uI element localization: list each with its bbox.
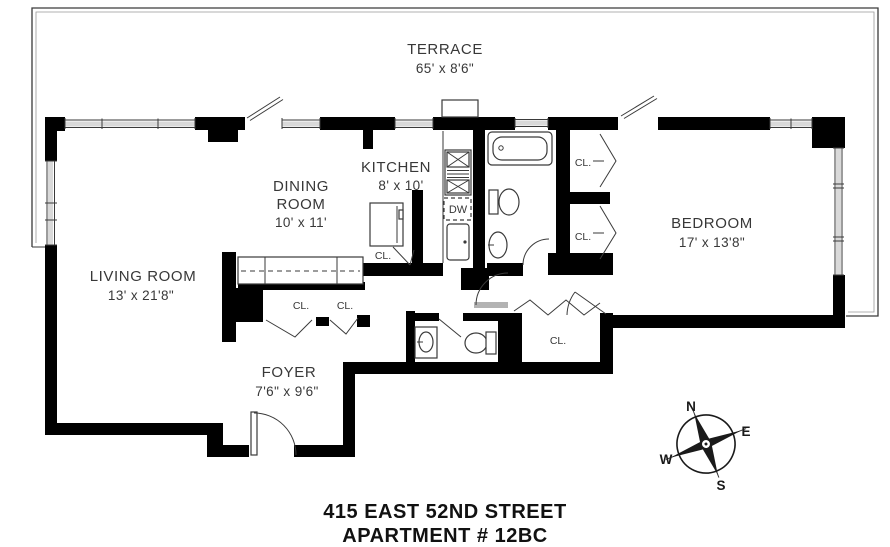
terrace-door-bedroom [621, 96, 657, 119]
built-in-shelf [238, 257, 363, 284]
dishwasher-label: DW [449, 204, 468, 216]
compass-south-label: S [716, 478, 725, 493]
dining-room-label-1: DINING [273, 178, 329, 195]
living-room-label: LIVING ROOM [90, 268, 197, 285]
floor-plan-page: TERRACE 65' x 8'6" LIVING ROOM 13' x 21'… [0, 0, 890, 547]
bedroom-closet-lower-bifold [593, 206, 616, 259]
bathroom-fixtures [488, 132, 552, 258]
address-block: 415 EAST 52ND STREET APARTMENT # 12BC [323, 501, 566, 547]
foyer-closet-right-label: CL. [337, 300, 353, 312]
compass-west-label: W [660, 452, 673, 467]
living-room-window-left [45, 161, 57, 245]
address-line1: 415 EAST 52ND STREET [323, 501, 566, 523]
address-line2: APARTMENT # 12BC [342, 525, 547, 547]
compass-east-label: E [741, 424, 750, 439]
foyer-closet-right-bifold [330, 318, 358, 334]
refrigerator-nook [370, 203, 403, 246]
bedroom-closet-lower-label: CL. [575, 231, 591, 243]
foyer-label: FOYER [262, 364, 317, 381]
bedroom-window-top [770, 118, 812, 129]
bathtub [488, 132, 552, 165]
bathroom-window [515, 118, 548, 128]
compass-rose: N E W S [653, 395, 759, 493]
windows [45, 118, 844, 275]
toilet-main [489, 189, 519, 215]
foyer-dims: 7'6" x 9'6" [255, 384, 318, 399]
bathroom-door [523, 239, 549, 265]
dining-room-window [395, 118, 433, 129]
kitchen-dims: 8' x 10' [378, 178, 423, 193]
hall-closet-label: CL. [550, 335, 566, 347]
living-room-window-top [65, 118, 195, 129]
floor-plan: TERRACE 65' x 8'6" LIVING ROOM 13' x 21'… [0, 0, 890, 547]
bedroom-label: BEDROOM [671, 215, 753, 232]
entry-door [251, 412, 296, 455]
powder-room-door [439, 319, 461, 337]
bedroom-closet-upper-bifold [593, 134, 616, 187]
closet-labels: CL. CL. CL. CL. CL. CL. DW [293, 157, 591, 347]
dining-room-dims: 10' x 11' [275, 215, 327, 230]
bedroom-closet-upper-label: CL. [575, 157, 591, 169]
terrace-door-dining [247, 97, 283, 121]
dining-closet-door [393, 247, 414, 265]
bedroom-window-east [833, 148, 844, 275]
sink-main [488, 232, 507, 258]
hall-closet-bifold [514, 300, 600, 315]
powder-room-fixtures [415, 327, 496, 358]
dining-closet-label: CL. [375, 250, 391, 262]
wall-shaft [442, 100, 478, 117]
toilet-powder [465, 332, 496, 354]
hall-door-leaf [474, 302, 508, 308]
dining-room-label-2: ROOM [276, 196, 325, 213]
refrigerator-kitchen [447, 224, 469, 260]
foyer-closet-left-label: CL. [293, 300, 309, 312]
terrace-label: TERRACE [407, 41, 483, 58]
terrace-dims: 65' x 8'6" [416, 61, 474, 76]
terrace-window-2 [282, 118, 320, 129]
vanity-sink [415, 327, 437, 358]
compass-north-label: N [686, 399, 696, 414]
foyer-closet-left-bifold [266, 320, 312, 337]
compass-needle [653, 395, 759, 493]
bedroom-dims: 17' x 13'8" [679, 235, 745, 250]
stove [445, 150, 471, 195]
living-room-dims: 13' x 21'8" [108, 288, 174, 303]
kitchen-label: KITCHEN [361, 159, 431, 176]
